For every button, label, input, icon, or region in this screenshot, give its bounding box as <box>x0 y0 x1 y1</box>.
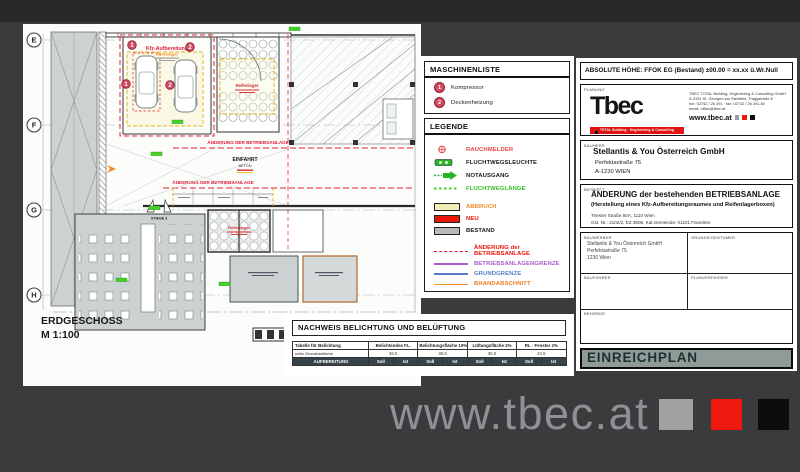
watermark-square-black <box>758 399 789 430</box>
aenderung-line-swatch <box>434 251 468 252</box>
reifenlagerboxen-label: Reifenlager <box>228 225 250 230</box>
cell-soll: Soll <box>467 358 492 366</box>
legend-label: FLUCHTWEGSLEUCHTE <box>466 160 537 166</box>
tbec-logo-tagline: TOTAL Building · Engineering & Consultin… <box>590 127 684 134</box>
planung-address: TBEC TOTAL Building, Engineering & Consu… <box>689 92 791 122</box>
title-block: ABSOLUTE HÖHE: FFOK EG (Bestand) ±00.00 … <box>576 58 797 371</box>
legend-label: NOTAUSGANG <box>466 173 509 179</box>
bauherr-box: BAUHERR Stellantis & You Österreich GmbH… <box>580 140 793 180</box>
parties-box: BAUWERBER Stellantis & You Österreich Gm… <box>580 232 793 344</box>
direction-arrow-icon <box>107 165 116 173</box>
grid-label-g: G <box>31 206 37 215</box>
legende-box: LEGENDE RAUCHMELDER FLUCHTWEGSLEUCHTE NO… <box>424 118 570 292</box>
reifenlager-room: Reifenlager <box>217 37 279 132</box>
machine-item-label: Deckenheizung <box>451 100 493 106</box>
cell-value: 36.5 <box>467 350 516 358</box>
bestand-swatch <box>434 227 460 235</box>
car-icon <box>135 56 159 108</box>
row-label: netto Grundrissfläche <box>293 350 369 358</box>
machine-number-badge: 1 <box>434 82 445 93</box>
bauwerber-label: BAUWERBER <box>584 235 612 240</box>
cell-value: 34.5 <box>517 350 566 358</box>
col-header: Belichtungsfläche 10% <box>418 342 467 350</box>
background-top-strip <box>0 0 800 22</box>
table-row: Tabelle für Belichtung Belichtendes FL. … <box>293 342 567 350</box>
betrifft-line-1: ÄNDERUNG der bestehenden BETRIEBSANLAGE <box>591 190 780 199</box>
rooms-lower-middle <box>230 256 357 302</box>
cell-soll: Soll <box>418 358 443 366</box>
plan-scale: M 1:100 <box>41 329 80 341</box>
legend-label: ABBRUCH <box>466 204 496 210</box>
brandabschnitt-line-swatch <box>434 284 468 285</box>
legend-label: ÄNDERUNG der BETRIEBSANLAGE <box>474 245 561 257</box>
betrifft-line-4: Gst. Nr.: 2102/2, EZ 3505, Kat.Gemeinde:… <box>591 220 710 225</box>
rauchmelder-icon <box>434 145 460 154</box>
table-row: AUFBEREITUNG Soll Ist Soll Ist Soll Ist … <box>293 358 567 366</box>
grid-bubbles: E F G H <box>27 33 41 302</box>
legend-panel: MASCHINENLISTE 1 Kompressor 2 Deckenheiz… <box>420 56 574 298</box>
legend-label: GRUNDGRENZE <box>474 271 521 277</box>
existing-rooms-lower: STIEGE 3 <box>75 200 205 330</box>
cell-value: 36.5 <box>418 350 467 358</box>
legend-label: NEU <box>466 216 479 222</box>
baufuehrer-label: BAUFÜHRER <box>584 275 611 280</box>
fluchtweglaenge-icon <box>434 184 460 193</box>
cell-ist: Ist <box>492 358 517 366</box>
bauwerber-line: Perfektastraße 75 <box>587 248 662 255</box>
fluchtwegsleuchte-icon <box>434 158 460 167</box>
legend-label: BRANDABSCHNITT <box>474 281 531 287</box>
cell-value: 36.5 <box>369 350 418 358</box>
nachweis-table: Tabelle für Belichtung Belichtendes FL. … <box>292 341 567 366</box>
einfahrt-label: EINFAHRT <box>233 157 258 163</box>
legend-item: NOTAUSGANG <box>434 171 561 180</box>
col-header: RL - Fenster 2% <box>517 342 566 350</box>
watermark-text: www.tbec.at <box>390 394 649 434</box>
machine-number-badge: 2 <box>434 97 445 108</box>
legend-item: FLUCHTWEGSLEUCHTE <box>434 158 561 167</box>
beton-label: BETON <box>238 164 251 168</box>
legend-item: BETRIEBSANLAGENGRENZE <box>434 261 561 267</box>
abbruch-swatch <box>434 203 460 211</box>
legende-title: LEGENDE <box>425 119 569 135</box>
tbec-logo-text: Tbec <box>590 94 684 118</box>
grid-label-f: F <box>32 121 37 130</box>
reifenlager-label: Reifenlager <box>236 83 259 88</box>
logo-square-black <box>750 115 755 120</box>
grundgrenze-line-swatch <box>434 273 468 275</box>
legend-item: BRANDABSCHNITT <box>434 281 561 287</box>
cell-ist: Ist <box>393 358 418 366</box>
bauwerber-line: Stellantis & You Österreich GmbH <box>587 241 662 248</box>
nachweis-title: NACHWEIS BELICHTUNG UND BELÜFTUNG <box>292 320 566 336</box>
address-line: email: office@tbec.at <box>689 107 791 112</box>
legend-label: BESTAND <box>466 228 495 234</box>
maschinenliste-title: MASCHINENLISTE <box>425 62 569 78</box>
grundeigentuemer-label: GRUNDEIGENTÜMER <box>691 235 735 240</box>
logo-square-red <box>742 115 747 120</box>
planung-box: PLANUNG Tbec TOTAL Building · Engineerin… <box>580 84 793 136</box>
tbec-logo-pixels <box>591 121 603 139</box>
existing-right-zone <box>289 37 415 145</box>
bauwerber-lines: Stellantis & You Österreich GmbH Perfekt… <box>587 241 662 262</box>
betrifft-box: BETRIFFT ÄNDERUNG der bestehenden BETRIE… <box>580 184 793 228</box>
legend-item: GRUNDGRENZE <box>434 271 561 277</box>
row-label: AUFBEREITUNG <box>293 358 369 366</box>
aenderung-label-2: ÄNDERUNG DER BETRIEBSANLAGE <box>172 179 253 185</box>
table-row: netto Grundrissfläche 36.5 36.5 36.5 34.… <box>293 350 567 358</box>
boxen-strip <box>173 188 273 206</box>
machine-item: 2 Deckenheizung <box>434 97 561 108</box>
legend-item: NEU <box>434 215 561 223</box>
bauherr-address-1: Perfektastraße 75 <box>595 160 641 166</box>
maschinenliste-box: MASCHINENLISTE 1 Kompressor 2 Deckenheiz… <box>424 61 570 114</box>
betrifft-line-3: Triester Straße 50A, 1110 Wien <box>591 213 655 218</box>
nachweis-panel: NACHWEIS BELICHTUNG UND BELÜFTUNG Tabell… <box>284 314 574 376</box>
bauherr-name: Stellantis & You Österreich GmbH <box>593 147 725 156</box>
machine-item-label: Kompressor <box>451 85 484 91</box>
stiege-label: STIEGE 3 <box>151 217 167 221</box>
legend-label: FLUCHTWEGLÄNGE <box>466 186 526 192</box>
car-icon <box>174 60 198 112</box>
watermark: www.tbec.at <box>390 394 789 434</box>
legend-item: ABBRUCH <box>434 203 561 211</box>
legend-label: BETRIEBSANLAGENGRENZE <box>474 261 560 267</box>
tbec-web-text: www.tbec.at <box>689 113 732 122</box>
reifenlagerboxen: Reifenlager <box>208 210 323 252</box>
planverfasser-label: PLANVERFASSER <box>691 275 728 280</box>
col-header: Belichtendes FL. <box>369 342 418 350</box>
plan-title: ERDGESCHOSS <box>41 315 123 327</box>
legend-label: RAUCHMELDER <box>466 147 513 153</box>
betriebsanlagengrenze-line-swatch <box>434 263 468 265</box>
kfz-room-sublabel: Reifenlager <box>156 52 178 57</box>
col-header: Tabelle für Belichtung <box>293 342 369 350</box>
watermark-square-gray <box>659 399 693 430</box>
notausgang-icon <box>434 171 460 180</box>
legend-item: RAUCHMELDER <box>434 145 561 154</box>
betrifft-line-2: (Herstellung eines Kfz-Aufbereitungsraum… <box>591 202 775 208</box>
cell-soll: Soll <box>369 358 394 366</box>
legend-item: ÄNDERUNG der BETRIEBSANLAGE <box>434 245 561 257</box>
absolute-hoehe-box: ABSOLUTE HÖHE: FFOK EG (Bestand) ±00.00 … <box>580 62 793 80</box>
bauwerber-line: 1230 Wien <box>587 255 662 262</box>
grid-label-h: H <box>31 291 36 300</box>
behoerde-label: BEHÖRDE <box>584 311 605 316</box>
cell-soll: Soll <box>517 358 542 366</box>
plan-type-banner: EINREICHPLAN <box>580 348 793 369</box>
machine-item: 1 Kompressor <box>434 82 561 93</box>
col-header: Lüftungsfläche 2% <box>467 342 516 350</box>
neu-swatch <box>434 215 460 223</box>
aenderung-label-1: ÄNDERUNG DER BETRIEBSANLAGE <box>207 139 288 145</box>
tbec-logo: Tbec TOTAL Building · Engineering & Cons… <box>590 94 684 134</box>
grid-label-e: E <box>31 36 36 45</box>
einfahrt-area: EINFAHRT BETON <box>106 144 288 206</box>
logo-square-gray <box>735 115 740 120</box>
cell-ist: Ist <box>541 358 566 366</box>
legend-item: BESTAND <box>434 227 561 235</box>
watermark-square-red <box>711 399 742 430</box>
cell-ist: Ist <box>443 358 468 366</box>
bauherr-address-2: A-1230 WIEN <box>595 169 630 175</box>
legend-item: FLUCHTWEGLÄNGE <box>434 184 561 193</box>
